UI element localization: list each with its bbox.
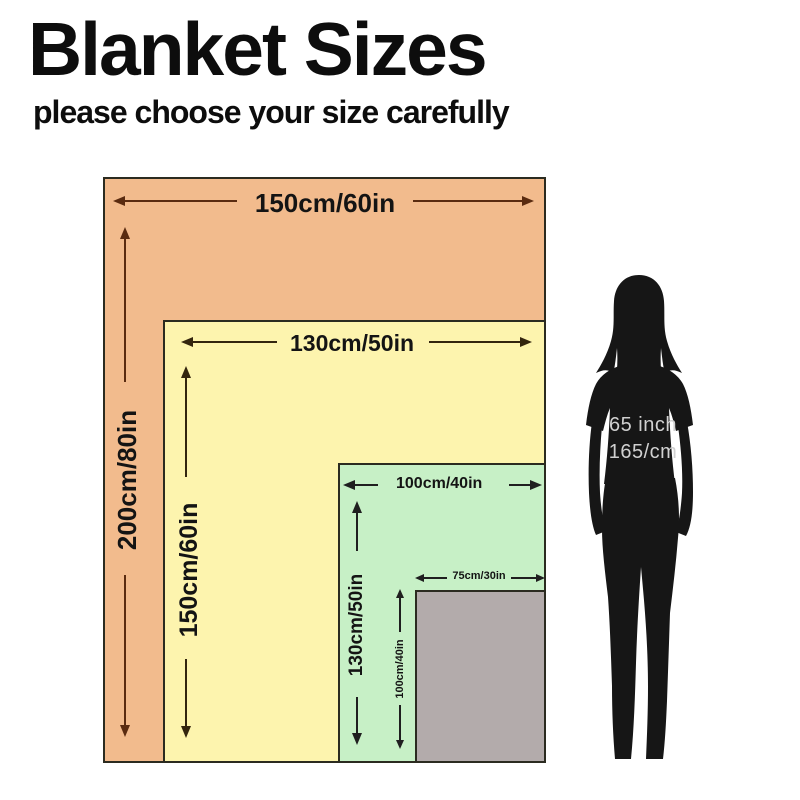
person-silhouette	[573, 272, 713, 766]
page-title: Blanket Sizes	[28, 10, 486, 89]
dimension-label-width-xl: 150cm/60in	[250, 188, 400, 219]
dimension-label-width-s: 75cm/30in	[452, 570, 506, 582]
blanket-size-chart: Blanket Sizes please choose your size ca…	[0, 0, 800, 800]
arrow-left-icon	[181, 336, 280, 348]
arrow-down-icon	[351, 694, 363, 745]
arrow-left-icon	[343, 479, 381, 491]
arrow-down-icon	[396, 703, 404, 749]
dimension-label-width-l: 130cm/50in	[290, 330, 414, 357]
dimension-label-height-l: 150cm/60in	[174, 485, 204, 655]
dimension-label-width-m: 100cm/40in	[396, 475, 482, 493]
dimension-label-height-xl: 200cm/80in	[111, 400, 143, 560]
blanket-rect-100x75	[415, 590, 546, 763]
person-height-cm: 165/cm	[573, 441, 713, 464]
arrow-down-icon	[119, 572, 131, 737]
dimension-label-height-m: 130cm/50in	[344, 565, 370, 685]
arrow-up-icon	[396, 589, 404, 634]
person-height-inches: 65 inch	[573, 414, 713, 437]
page-subtitle: please choose your size carefully	[33, 94, 509, 131]
arrow-right-icon	[506, 479, 542, 491]
arrow-up-icon	[351, 501, 363, 554]
arrow-up-icon	[119, 227, 131, 385]
arrow-right-icon	[426, 336, 532, 348]
arrow-left-icon	[415, 574, 449, 582]
arrow-up-icon	[180, 366, 192, 480]
arrow-right-icon	[410, 195, 534, 207]
arrow-right-icon	[509, 574, 545, 582]
arrow-left-icon	[113, 195, 240, 207]
dimension-label-height-s: 100cm/40in	[391, 634, 409, 704]
arrow-down-icon	[180, 656, 192, 738]
